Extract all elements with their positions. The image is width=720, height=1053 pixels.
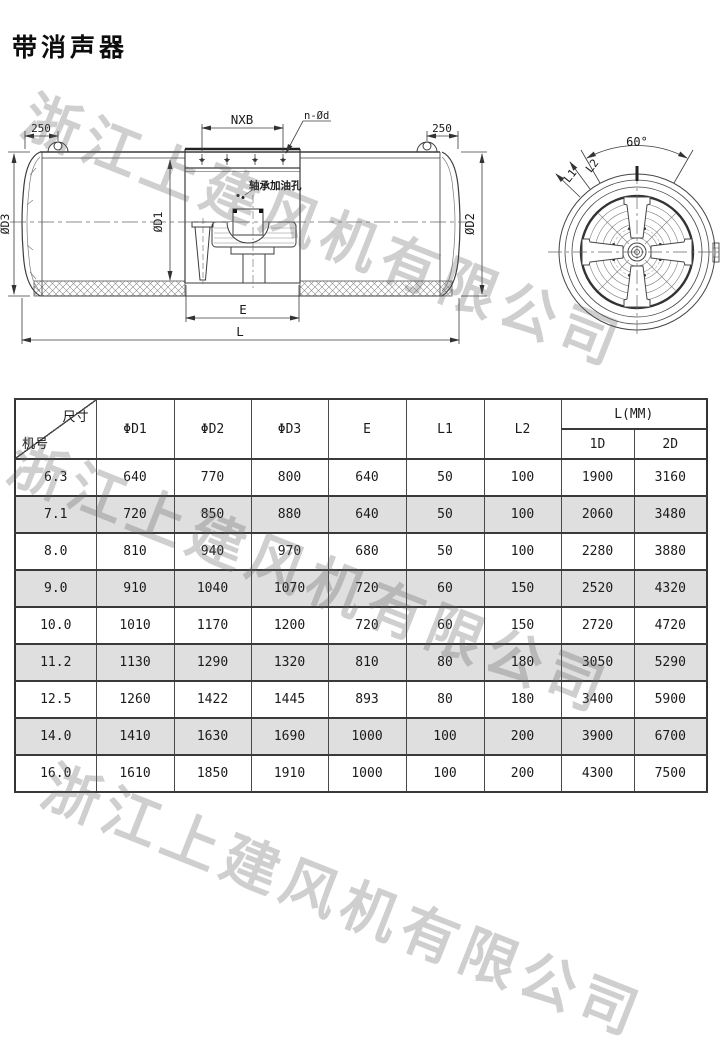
side-view-drawing: 轴承加油孔 250 NXB n-Ød 250 ØD3 [0,110,487,344]
table-cell: 810 [328,644,406,681]
table-cell: 1170 [174,607,251,644]
side-tab [713,243,719,262]
table-cell: 60 [406,570,484,607]
dim-250-left: 250 [31,122,51,135]
dim-nxb: NXB [231,112,254,127]
table-cell: 1260 [96,681,174,718]
table-cell: 1445 [251,681,328,718]
bearing-oil-hole-label: 轴承加油孔 [249,179,302,192]
corner-label-size: 尺寸 [62,406,88,425]
table-cell: 2060 [561,496,634,533]
model-cell: 8.0 [15,533,96,570]
table-row: 6.3 6407708006405010019003160 [15,459,707,496]
motor-assembly [212,195,296,290]
table-cell: 1040 [174,570,251,607]
table-cell: 940 [174,533,251,570]
table-cell: 1130 [96,644,174,681]
dim-n-holes: n-Ød [304,110,329,122]
table-cell: 2720 [561,607,634,644]
corner-label-model: 机号 [22,433,48,452]
table-cell: 50 [406,496,484,533]
dim-e: E [239,302,247,317]
fan-unit-box: 轴承加油孔 [185,149,302,290]
table-cell: 60 [406,607,484,644]
table-cell: 1850 [174,755,251,792]
model-cell: 11.2 [15,644,96,681]
table-cell: 50 [406,459,484,496]
table-cell: 3400 [561,681,634,718]
table-cell: 7500 [634,755,707,792]
table-cell: 1900 [561,459,634,496]
table-cell: 6700 [634,718,707,755]
table-cell: 720 [328,607,406,644]
dim-l1: L1 [561,167,579,185]
table-cell: 3050 [561,644,634,681]
table-cell: 880 [251,496,328,533]
front-view-drawing: 60° L1 L2 [548,135,720,334]
model-cell: 7.1 [15,496,96,533]
model-cell: 12.5 [15,681,96,718]
table-cell: 640 [96,459,174,496]
table-cell: 720 [96,496,174,533]
table-header-row: 尺寸 机号 ΦD1 ΦD2 ΦD3 E L1 L2 L(MM) [15,399,707,429]
model-cell: 10.0 [15,607,96,644]
table-cell: 100 [484,533,561,570]
table-cell: 970 [251,533,328,570]
table-cell: 5290 [634,644,707,681]
table-cell: 640 [328,496,406,533]
dim-d2: ØD2 [463,213,477,235]
corner-header-cell: 尺寸 机号 [15,399,96,459]
dim-d3: ØD3 [0,214,12,235]
table-cell: 1690 [251,718,328,755]
table-cell: 1630 [174,718,251,755]
table-cell: 80 [406,644,484,681]
column-header-l1: L1 [406,399,484,459]
table-cell: 1290 [174,644,251,681]
dim-d1: ØD1 [151,212,165,233]
table-cell: 200 [484,755,561,792]
table-cell: 893 [328,681,406,718]
model-cell: 9.0 [15,570,96,607]
column-header-lmm: L(MM) [561,399,707,429]
table-row: 8.0 8109409706805010022803880 [15,533,707,570]
page-title: 带消声器 [12,28,128,64]
column-header-1d: 1D [561,429,634,459]
table-cell: 3880 [634,533,707,570]
dimension-spec-table: 尺寸 机号 ΦD1 ΦD2 ΦD3 E L1 L2 L(MM) 1D 2D 6.… [14,398,708,793]
table-cell: 180 [484,681,561,718]
table-cell: 4320 [634,570,707,607]
table-cell: 100 [484,496,561,533]
table-cell: 3900 [561,718,634,755]
table-cell: 150 [484,570,561,607]
table-cell: 800 [251,459,328,496]
table-cell: 80 [406,681,484,718]
model-cell: 14.0 [15,718,96,755]
table-cell: 1200 [251,607,328,644]
flange-bolts [199,154,286,165]
table-row: 10.0 1010117012007206015027204720 [15,607,707,644]
dim-250-right: 250 [432,122,452,135]
table-cell: 1610 [96,755,174,792]
table-cell: 1070 [251,570,328,607]
table-cell: 680 [328,533,406,570]
inlet-funnel [192,218,213,284]
table-cell: 850 [174,496,251,533]
table-cell: 150 [484,607,561,644]
table-cell: 1410 [96,718,174,755]
column-header-d2: ΦD2 [174,399,251,459]
table-row: 7.1 7208508806405010020603480 [15,496,707,533]
table-cell: 2280 [561,533,634,570]
column-header-d3: ΦD3 [251,399,328,459]
table-cell: 200 [484,718,561,755]
table-row: 14.0 141016301690100010020039006700 [15,718,707,755]
catalog-page: { "title": "带消声器", "watermark": { "text"… [0,0,720,828]
table-row: 9.0 910104010707206015025204320 [15,570,707,607]
table-cell: 720 [328,570,406,607]
table-cell: 180 [484,644,561,681]
table-cell: 5900 [634,681,707,718]
table-row: 12.5 1260142214458938018034005900 [15,681,707,718]
dim-l2: L2 [583,157,601,175]
dimensions-front: 60° L1 L2 [556,135,693,197]
model-cell: 16.0 [15,755,96,792]
dim-60deg: 60° [626,135,648,149]
table-cell: 1422 [174,681,251,718]
table-cell: 1000 [328,718,406,755]
table-cell: 770 [174,459,251,496]
table-cell: 100 [406,755,484,792]
table-cell: 2520 [561,570,634,607]
table-cell: 1320 [251,644,328,681]
table-cell: 3480 [634,496,707,533]
model-cell: 6.3 [15,459,96,496]
table-row: 11.2 1130129013208108018030505290 [15,644,707,681]
dim-l: L [236,324,244,339]
column-header-2d: 2D [634,429,707,459]
table-cell: 3160 [634,459,707,496]
column-header-l2: L2 [484,399,561,459]
table-cell: 100 [406,718,484,755]
fan-technical-drawing: 轴承加油孔 250 NXB n-Ød 250 ØD3 [0,80,720,380]
table-cell: 640 [328,459,406,496]
table-cell: 100 [484,459,561,496]
table-cell: 1000 [328,755,406,792]
bearing-oil-hole-callout: 轴承加油孔 [237,179,302,199]
table-cell: 810 [96,533,174,570]
table-cell: 1910 [251,755,328,792]
column-header-e: E [328,399,406,459]
table-cell: 50 [406,533,484,570]
lifting-lug-right [417,142,437,152]
table-cell: 910 [96,570,174,607]
lifting-lug-left [48,142,68,152]
table-row: 16.0 161018501910100010020043007500 [15,755,707,792]
table-cell: 4720 [634,607,707,644]
column-header-d1: ΦD1 [96,399,174,459]
table-cell: 1010 [96,607,174,644]
table-cell: 4300 [561,755,634,792]
